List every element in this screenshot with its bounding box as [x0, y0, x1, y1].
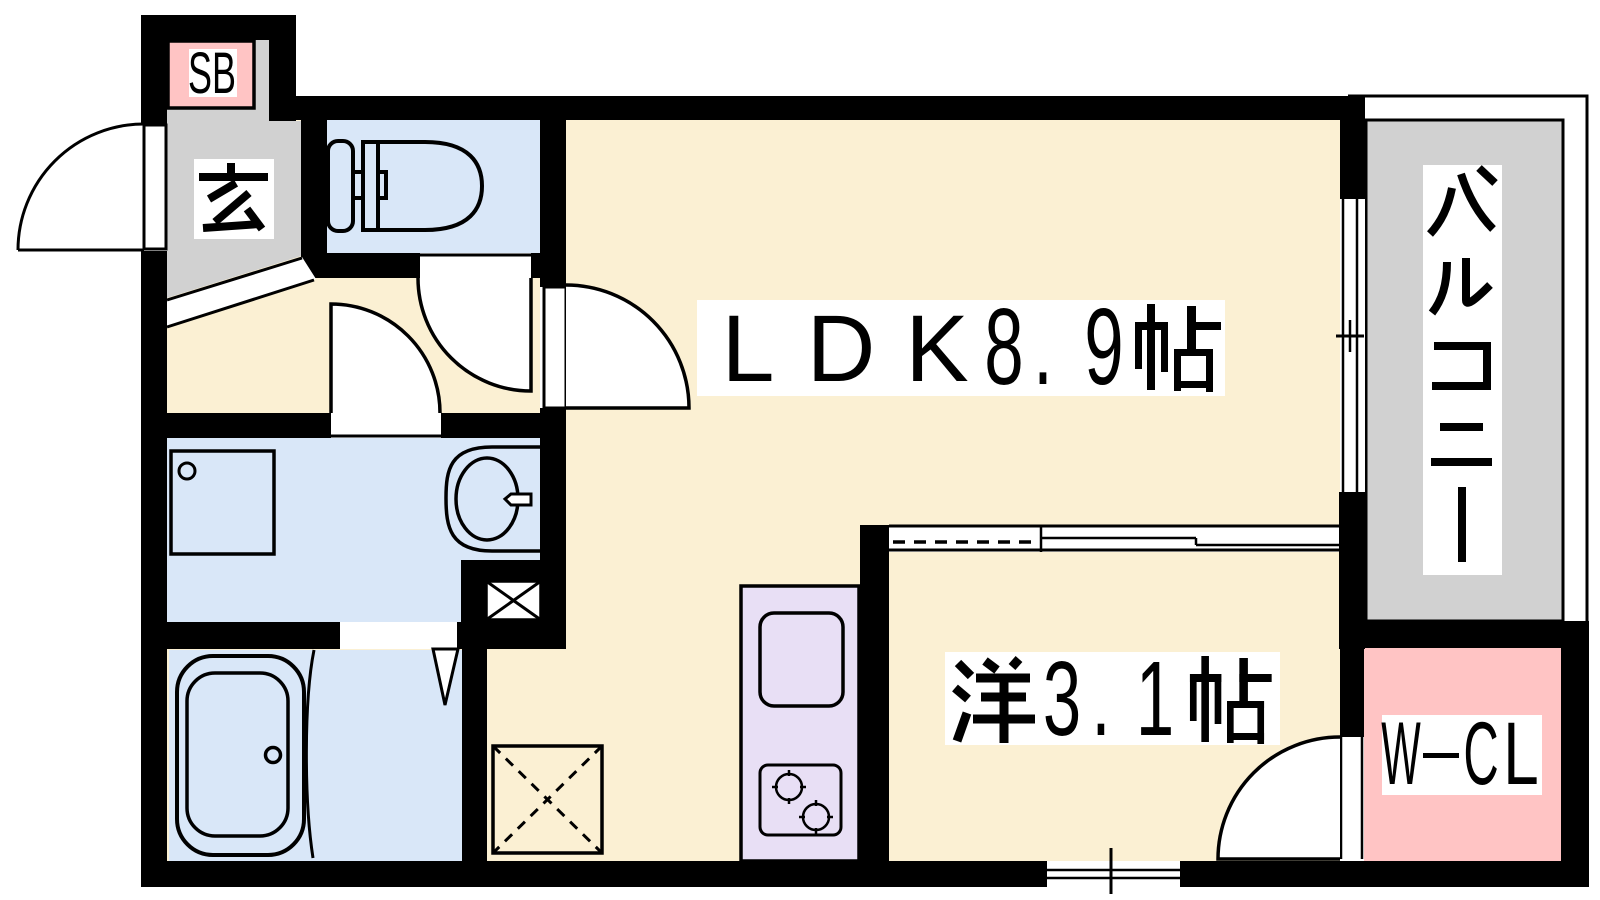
svg-text:8: 8 [984, 287, 1023, 408]
svg-text:9: 9 [1084, 287, 1123, 408]
svg-text:D: D [807, 296, 876, 402]
svg-text:.: . [1091, 639, 1110, 758]
svg-text:3: 3 [1043, 639, 1081, 758]
svg-text:S: S [188, 41, 212, 106]
svg-text:L: L [722, 296, 775, 402]
svg-text:W: W [1381, 703, 1421, 803]
svg-text:L: L [1503, 705, 1539, 804]
svg-text:1: 1 [1136, 639, 1174, 758]
svg-text:B: B [212, 41, 236, 106]
svg-text:C: C [1463, 705, 1498, 804]
svg-text:K: K [905, 296, 968, 402]
svg-text:.: . [1033, 287, 1053, 408]
